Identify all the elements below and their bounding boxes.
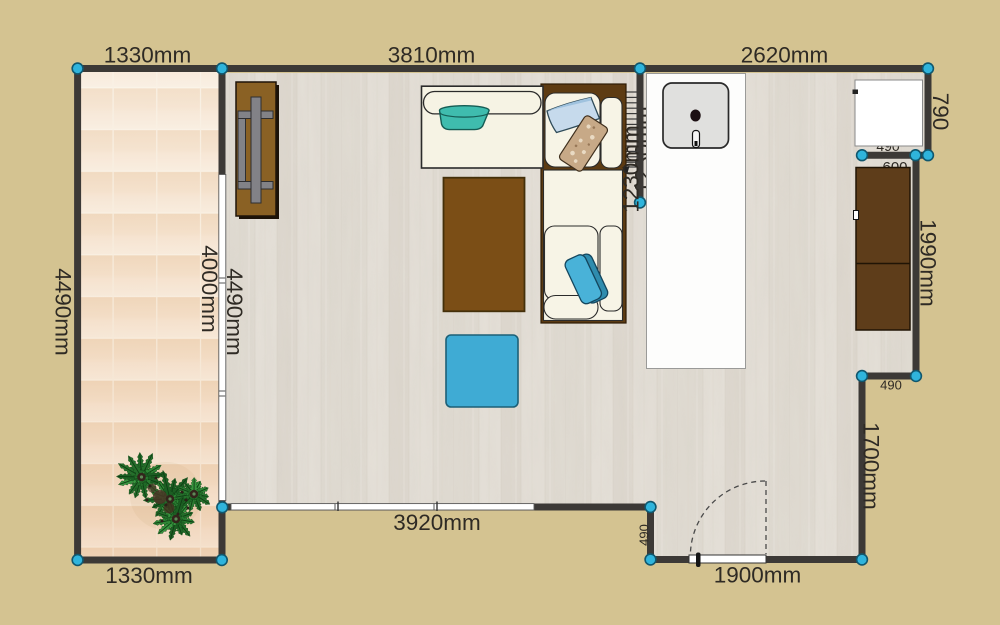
svg-text:490: 490 xyxy=(880,378,902,393)
svg-text:1700mm: 1700mm xyxy=(859,422,884,510)
svg-text:3810mm: 3810mm xyxy=(388,43,476,68)
svg-text:490: 490 xyxy=(637,524,652,546)
svg-text:1330mm: 1330mm xyxy=(104,43,192,68)
svg-text:1330mm: 1330mm xyxy=(105,563,193,588)
svg-text:790: 790 xyxy=(928,93,953,131)
svg-text:4490mm: 4490mm xyxy=(222,268,247,356)
svg-text:4000mm: 4000mm xyxy=(197,245,222,333)
svg-text:3920mm: 3920mm xyxy=(393,510,481,535)
svg-text:2620mm: 2620mm xyxy=(741,43,829,68)
svg-text:4490mm: 4490mm xyxy=(51,268,76,356)
svg-text:1900mm: 1900mm xyxy=(714,563,802,588)
svg-text:1990mm: 1990mm xyxy=(916,219,941,307)
svg-text:1230mm: 1230mm xyxy=(619,125,644,213)
